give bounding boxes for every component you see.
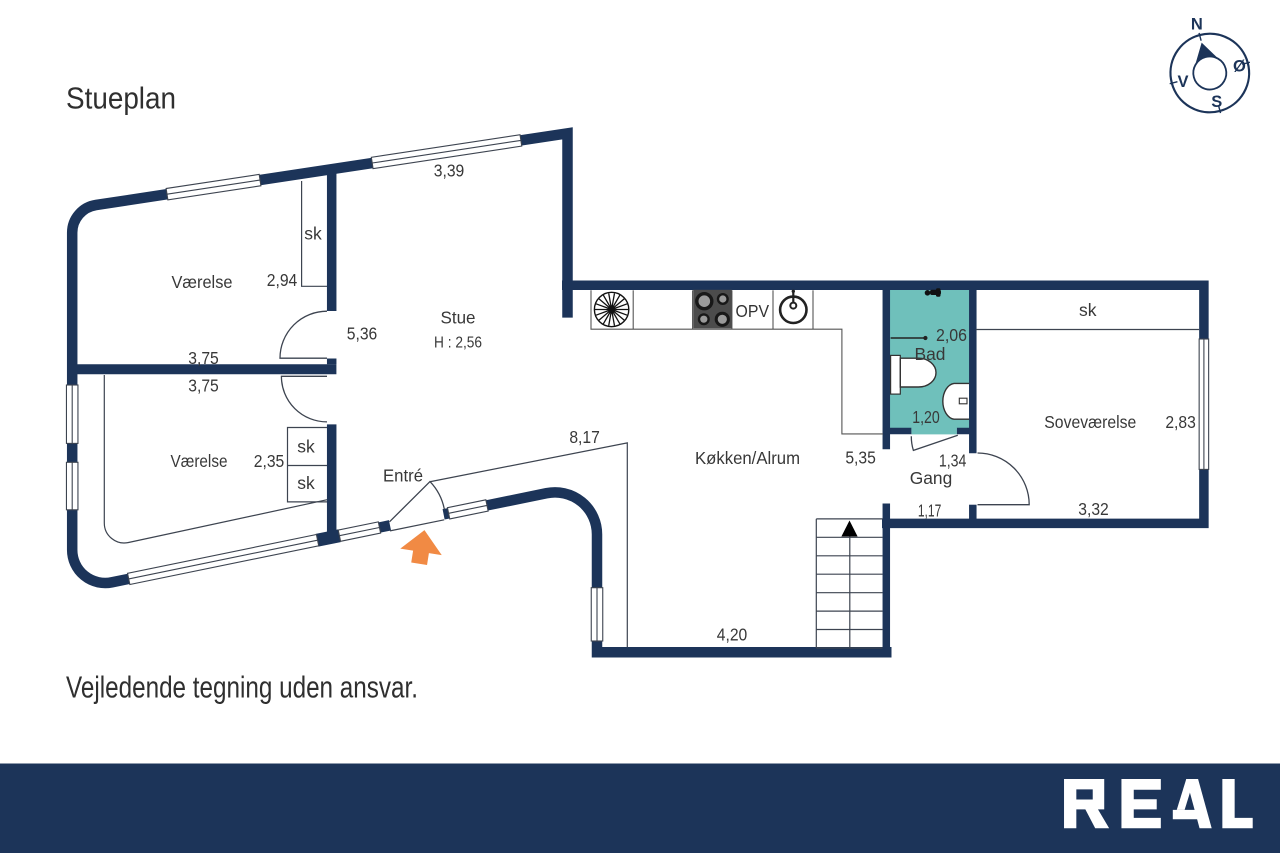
svg-text:sk: sk <box>304 224 322 244</box>
svg-text:Stueplan: Stueplan <box>66 81 176 116</box>
svg-text:sk: sk <box>1079 300 1097 320</box>
svg-text:S: S <box>1211 93 1222 111</box>
svg-text:OPV: OPV <box>736 301 770 321</box>
svg-text:4,20: 4,20 <box>717 625 748 645</box>
svg-text:Værelse: Værelse <box>172 272 233 292</box>
svg-text:3,39: 3,39 <box>434 161 465 181</box>
svg-text:5,35: 5,35 <box>845 448 876 468</box>
svg-text:Køkken/Alrum: Køkken/Alrum <box>695 448 800 468</box>
svg-text:2,35: 2,35 <box>254 451 285 471</box>
svg-text:Entré: Entré <box>383 466 423 486</box>
svg-text:5,36: 5,36 <box>347 324 378 344</box>
svg-text:sk: sk <box>297 473 315 493</box>
svg-text:3,32: 3,32 <box>1078 499 1109 519</box>
svg-text:N: N <box>1191 16 1203 34</box>
svg-text:Vejledende tegning uden ansvar: Vejledende tegning uden ansvar. <box>66 670 418 705</box>
svg-text:V: V <box>1177 73 1188 91</box>
svg-text:Værelse: Værelse <box>171 451 228 471</box>
svg-text:3,75: 3,75 <box>188 376 219 396</box>
svg-text:1,20: 1,20 <box>912 407 940 427</box>
svg-text:2,83: 2,83 <box>1165 412 1196 432</box>
svg-text:sk: sk <box>297 437 315 457</box>
svg-text:Soveværelse: Soveværelse <box>1044 412 1136 432</box>
svg-text:H : 2,56: H : 2,56 <box>434 335 482 352</box>
svg-text:3,75: 3,75 <box>188 348 219 368</box>
svg-text:Gang: Gang <box>910 468 953 488</box>
svg-text:1,17: 1,17 <box>918 501 942 521</box>
svg-text:Ø: Ø <box>1233 58 1246 76</box>
svg-text:Bad: Bad <box>915 344 946 364</box>
svg-text:8,17: 8,17 <box>569 427 600 447</box>
svg-text:Stue: Stue <box>441 308 476 328</box>
svg-text:2,06: 2,06 <box>936 325 967 345</box>
svg-text:2,94: 2,94 <box>267 270 298 290</box>
